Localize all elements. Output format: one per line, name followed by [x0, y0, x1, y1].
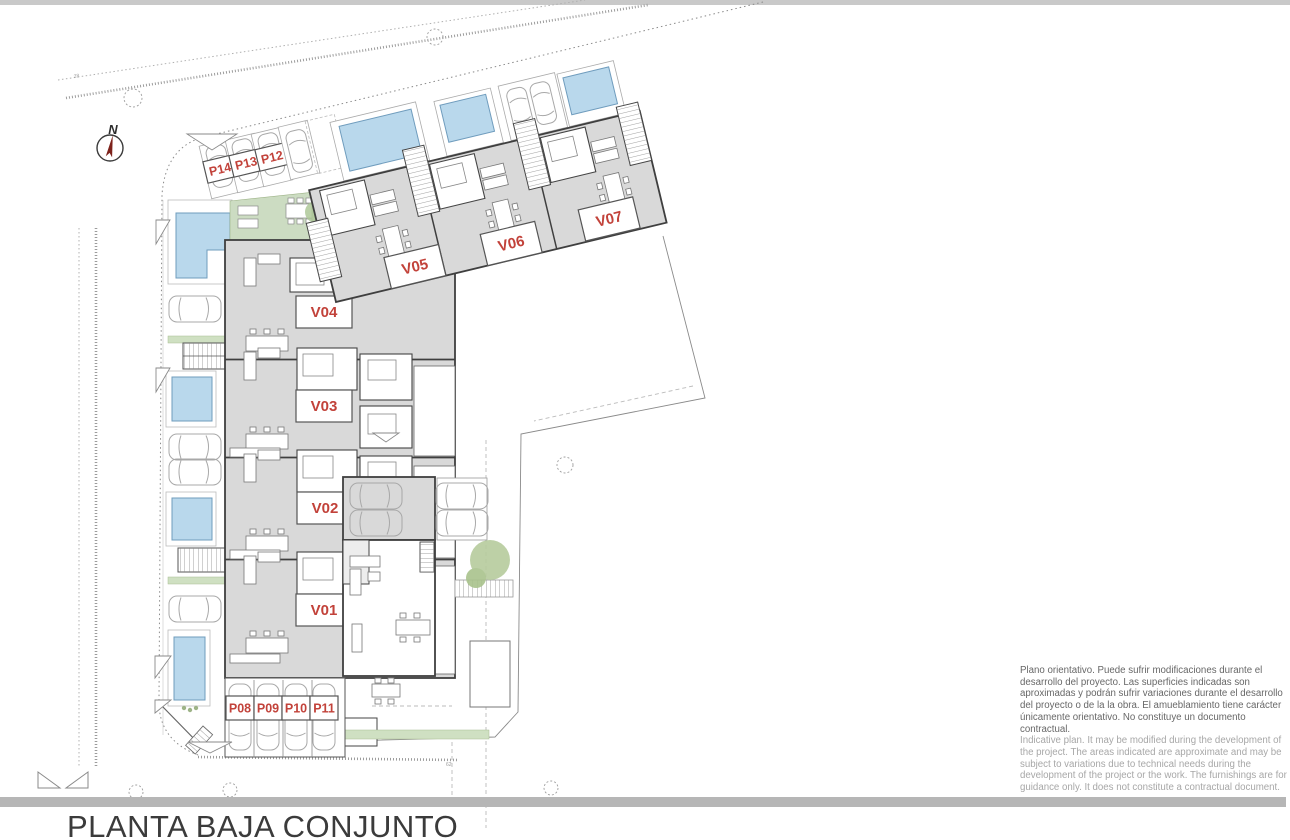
parking-label: P10 — [285, 702, 307, 716]
plants — [182, 706, 198, 712]
parking-label: P09 — [257, 702, 279, 716]
page-title: PLANTA BAJA CONJUNTO — [67, 809, 458, 840]
disclaimer-spanish: Plano orientativo. Puede sufrir modifica… — [1020, 665, 1288, 735]
pool-outline — [470, 641, 510, 707]
unit-label: V02 — [312, 500, 339, 517]
stairs — [420, 542, 434, 572]
dimension-tick: 62 — [446, 762, 452, 768]
dimension-tick: 28 — [73, 73, 80, 80]
bottom-divider-bar — [0, 797, 1286, 807]
parking-label: P11 — [313, 702, 335, 716]
floor-plan-page: 28 62 — [0, 0, 1290, 840]
parking-row-bottom: P08 P09 P10 P11 — [225, 678, 345, 757]
unit-label: V01 — [311, 602, 338, 619]
north-arrow-icon: N — [97, 122, 123, 161]
top-wing-building: V05 V06 — [295, 51, 667, 302]
road-left — [79, 228, 96, 768]
survey-marker-icon — [38, 772, 88, 788]
hedge — [345, 730, 489, 739]
terrace-dining — [372, 678, 400, 704]
unit-label: V03 — [311, 398, 338, 415]
parking-label: P08 — [229, 702, 251, 716]
disclaimer-english: Indicative plan. It may be modified duri… — [1020, 735, 1288, 794]
unit-label: V04 — [311, 304, 338, 321]
north-label: N — [108, 122, 118, 137]
disclaimer: Plano orientativo. Puede sufrir modifica… — [1020, 665, 1288, 794]
